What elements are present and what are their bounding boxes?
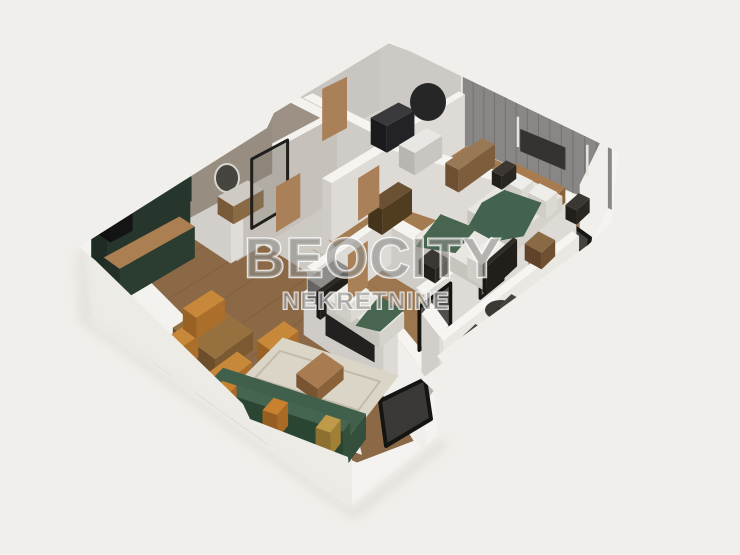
svg-text:BEOCITY: BEOCITY: [244, 226, 501, 289]
svg-text:NEKRETNINE: NEKRETNINE: [282, 288, 450, 315]
